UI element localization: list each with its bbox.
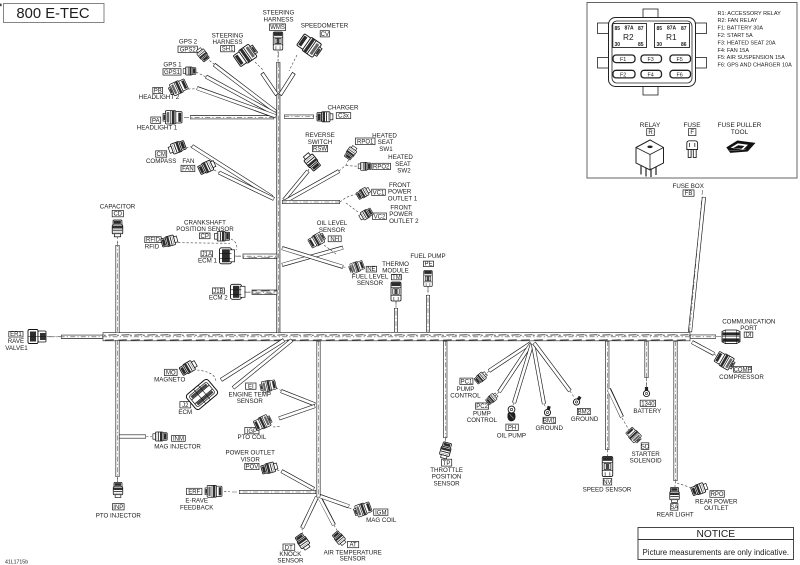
svg-text:J2: J2 <box>182 403 189 409</box>
svg-text:SENSOR: SENSOR <box>340 556 367 563</box>
svg-text:POV: POV <box>246 465 259 471</box>
svg-text:F1: F1 <box>620 57 626 63</box>
svg-text:PTO INJECTOR: PTO INJECTOR <box>96 513 142 520</box>
svg-text:CAPACITOR: CAPACITOR <box>100 203 136 210</box>
svg-text:DI: DI <box>746 333 752 339</box>
svg-text:ERF: ERF <box>188 490 200 496</box>
svg-text:GPS 2: GPS 2 <box>179 39 198 46</box>
svg-text:87A: 87A <box>667 26 677 32</box>
svg-text:RELAY: RELAY <box>640 122 661 129</box>
svg-text:PE: PE <box>424 262 432 268</box>
svg-text:GPS1: GPS1 <box>164 70 181 76</box>
svg-text:COMPASS: COMPASS <box>146 158 176 165</box>
svg-text:GPS2: GPS2 <box>180 47 197 53</box>
svg-text:F2: F2 <box>620 73 626 79</box>
svg-text:NV: NV <box>603 480 611 486</box>
svg-text:87A: 87A <box>625 26 635 32</box>
svg-text:RFID: RFID <box>145 244 160 251</box>
svg-text:87: 87 <box>638 26 644 32</box>
svg-text:OUTLET 2: OUTLET 2 <box>389 218 419 225</box>
svg-text:OUTLET 1: OUTLET 1 <box>388 195 418 202</box>
svg-text:FUSE: FUSE <box>683 122 700 129</box>
svg-text:SA: SA <box>670 505 678 511</box>
svg-text:R2: FAN RELAY: R2: FAN RELAY <box>718 18 758 24</box>
svg-text:VC1: VC1 <box>373 190 385 196</box>
svg-text:SH1: SH1 <box>222 47 234 53</box>
svg-text:GROUND: GROUND <box>571 416 599 423</box>
svg-text:PORT: PORT <box>740 325 757 332</box>
svg-text:SPEED SENSOR: SPEED SENSOR <box>583 486 632 493</box>
svg-text:IGM: IGM <box>375 510 386 516</box>
svg-text:Picture measurements are only: Picture measurements are only indicative… <box>643 548 789 557</box>
svg-text:F5: F5 <box>677 57 683 63</box>
svg-text:FAN: FAN <box>182 167 194 173</box>
svg-text:TOOL: TOOL <box>731 129 749 136</box>
svg-text:CONTROL: CONTROL <box>467 417 498 424</box>
svg-text:HEADLIGHT 1: HEADLIGHT 1 <box>137 125 178 132</box>
svg-text:800 E-TEC: 800 E-TEC <box>16 6 90 22</box>
svg-text:COMP: COMP <box>734 367 752 373</box>
svg-text:SOLENOID: SOLENOID <box>630 458 663 465</box>
svg-text:F: F <box>690 130 694 136</box>
svg-text:F4: FAN 15A: F4: FAN 15A <box>718 48 750 54</box>
svg-text:85: 85 <box>657 26 663 32</box>
svg-text:R1: ACCESSORY RELAY: R1: ACCESSORY RELAY <box>718 11 782 17</box>
svg-text:ECM 2: ECM 2 <box>209 295 228 302</box>
svg-text:SENSOR: SENSOR <box>237 398 264 405</box>
svg-text:CV: CV <box>321 32 329 38</box>
svg-text:VISOR: VISOR <box>241 456 261 463</box>
svg-text:85: 85 <box>638 42 644 48</box>
svg-text:86: 86 <box>681 42 687 48</box>
svg-text:TM: TM <box>392 275 401 281</box>
svg-text:BM2: BM2 <box>578 410 591 416</box>
svg-text:VC2: VC2 <box>374 214 386 220</box>
svg-text:BM1: BM1 <box>543 419 556 425</box>
svg-text:41L1715b: 41L1715b <box>5 560 28 565</box>
svg-text:OUTLET: OUTLET <box>704 505 729 512</box>
svg-text:SENSOR: SENSOR <box>277 557 304 564</box>
svg-text:F1: BATTERY 30A: F1: BATTERY 30A <box>718 26 764 32</box>
svg-text:RPO1: RPO1 <box>357 139 374 145</box>
svg-text:R1: R1 <box>666 32 677 42</box>
svg-text:SWITCH: SWITCH <box>308 139 332 146</box>
svg-text:SW2: SW2 <box>397 168 411 175</box>
svg-text:AT: AT <box>349 543 357 549</box>
svg-text:FB: FB <box>685 191 693 197</box>
svg-text:REAR LIGHT: REAR LIGHT <box>657 511 694 518</box>
svg-text:F5: AIR SUSPENSION 15A: F5: AIR SUSPENSION 15A <box>718 55 786 61</box>
svg-text:F6: F6 <box>677 73 683 79</box>
svg-text:MODULE: MODULE <box>382 268 408 275</box>
svg-text:R2: R2 <box>623 32 634 42</box>
svg-text:F3: HEATED SEAT 20A: F3: HEATED SEAT 20A <box>718 40 776 46</box>
svg-text:PA: PA <box>152 118 160 124</box>
svg-text:F3: F3 <box>648 57 654 63</box>
svg-text:FEEDBACK: FEEDBACK <box>180 504 214 511</box>
svg-text:SW1: SW1 <box>379 146 393 153</box>
svg-text:PTO COIL: PTO COIL <box>238 434 267 441</box>
svg-text:TP: TP <box>443 461 451 467</box>
svg-text:FUSE BOX: FUSE BOX <box>673 183 704 190</box>
svg-text:F6: GPS AND CHARGER 10A: F6: GPS AND CHARGER 10A <box>718 63 793 69</box>
svg-text:CP: CP <box>201 234 209 240</box>
svg-text:EI: EI <box>248 384 254 390</box>
svg-text:WMS: WMS <box>270 25 285 31</box>
svg-text:ECM 1: ECM 1 <box>198 257 217 264</box>
svg-text:PC2: PC2 <box>476 404 488 410</box>
svg-text:VALVE1: VALVE1 <box>5 345 28 352</box>
svg-text:HARNESS: HARNESS <box>213 39 243 46</box>
svg-text:PH: PH <box>508 425 516 431</box>
svg-text:MAG COIL: MAG COIL <box>366 517 397 524</box>
svg-text:85: 85 <box>615 26 621 32</box>
svg-text:INP: INP <box>113 505 123 511</box>
svg-text:HEADLIGHT 2: HEADLIGHT 2 <box>139 94 180 101</box>
svg-text:MAGNETO: MAGNETO <box>154 377 185 384</box>
svg-text:INM: INM <box>173 436 184 442</box>
svg-text:NH: NH <box>330 237 339 243</box>
svg-text:FAN: FAN <box>182 158 194 165</box>
svg-text:30: 30 <box>657 42 663 48</box>
svg-text:RSW: RSW <box>313 147 327 153</box>
svg-text:ER1: ER1 <box>10 332 22 338</box>
svg-text:RPO: RPO <box>711 492 724 498</box>
svg-text:RPO2: RPO2 <box>373 165 390 171</box>
svg-text:CD: CD <box>113 212 122 218</box>
svg-text:NOTICE: NOTICE <box>697 529 736 540</box>
svg-text:FUEL PUMP: FUEL PUMP <box>410 253 445 260</box>
svg-text:BATTERY: BATTERY <box>633 408 661 415</box>
svg-text:SENSOR: SENSOR <box>357 280 384 287</box>
svg-text:CONTROL: CONTROL <box>450 393 481 400</box>
svg-text:SENSOR: SENSOR <box>319 227 346 234</box>
svg-text:PC1: PC1 <box>461 379 473 385</box>
svg-text:30: 30 <box>615 42 621 48</box>
svg-text:NE: NE <box>367 267 375 273</box>
svg-text:SPEEDOMETER: SPEEDOMETER <box>301 22 349 29</box>
svg-text:F2: START 5A: F2: START 5A <box>718 33 753 39</box>
svg-text:SENSOR: SENSOR <box>434 480 461 487</box>
svg-text:R: R <box>648 130 653 136</box>
svg-text:COMPRESSOR: COMPRESSOR <box>719 374 764 381</box>
svg-text:SD: SD <box>641 444 650 450</box>
svg-text:GPS 1: GPS 1 <box>163 62 182 69</box>
svg-text:MAG INJECTOR: MAG INJECTOR <box>154 443 201 450</box>
svg-text:GROUND: GROUND <box>535 425 563 432</box>
svg-text:CHARGER: CHARGER <box>328 105 359 112</box>
svg-text:HARNESS: HARNESS <box>264 16 294 23</box>
svg-text:87: 87 <box>681 26 687 32</box>
svg-text:1340: 1340 <box>641 401 655 407</box>
svg-text:OIL PUMP: OIL PUMP <box>497 432 526 439</box>
svg-text:F4: F4 <box>648 73 654 79</box>
svg-text:ECM: ECM <box>178 409 192 416</box>
svg-text:C3x: C3x <box>338 114 349 120</box>
